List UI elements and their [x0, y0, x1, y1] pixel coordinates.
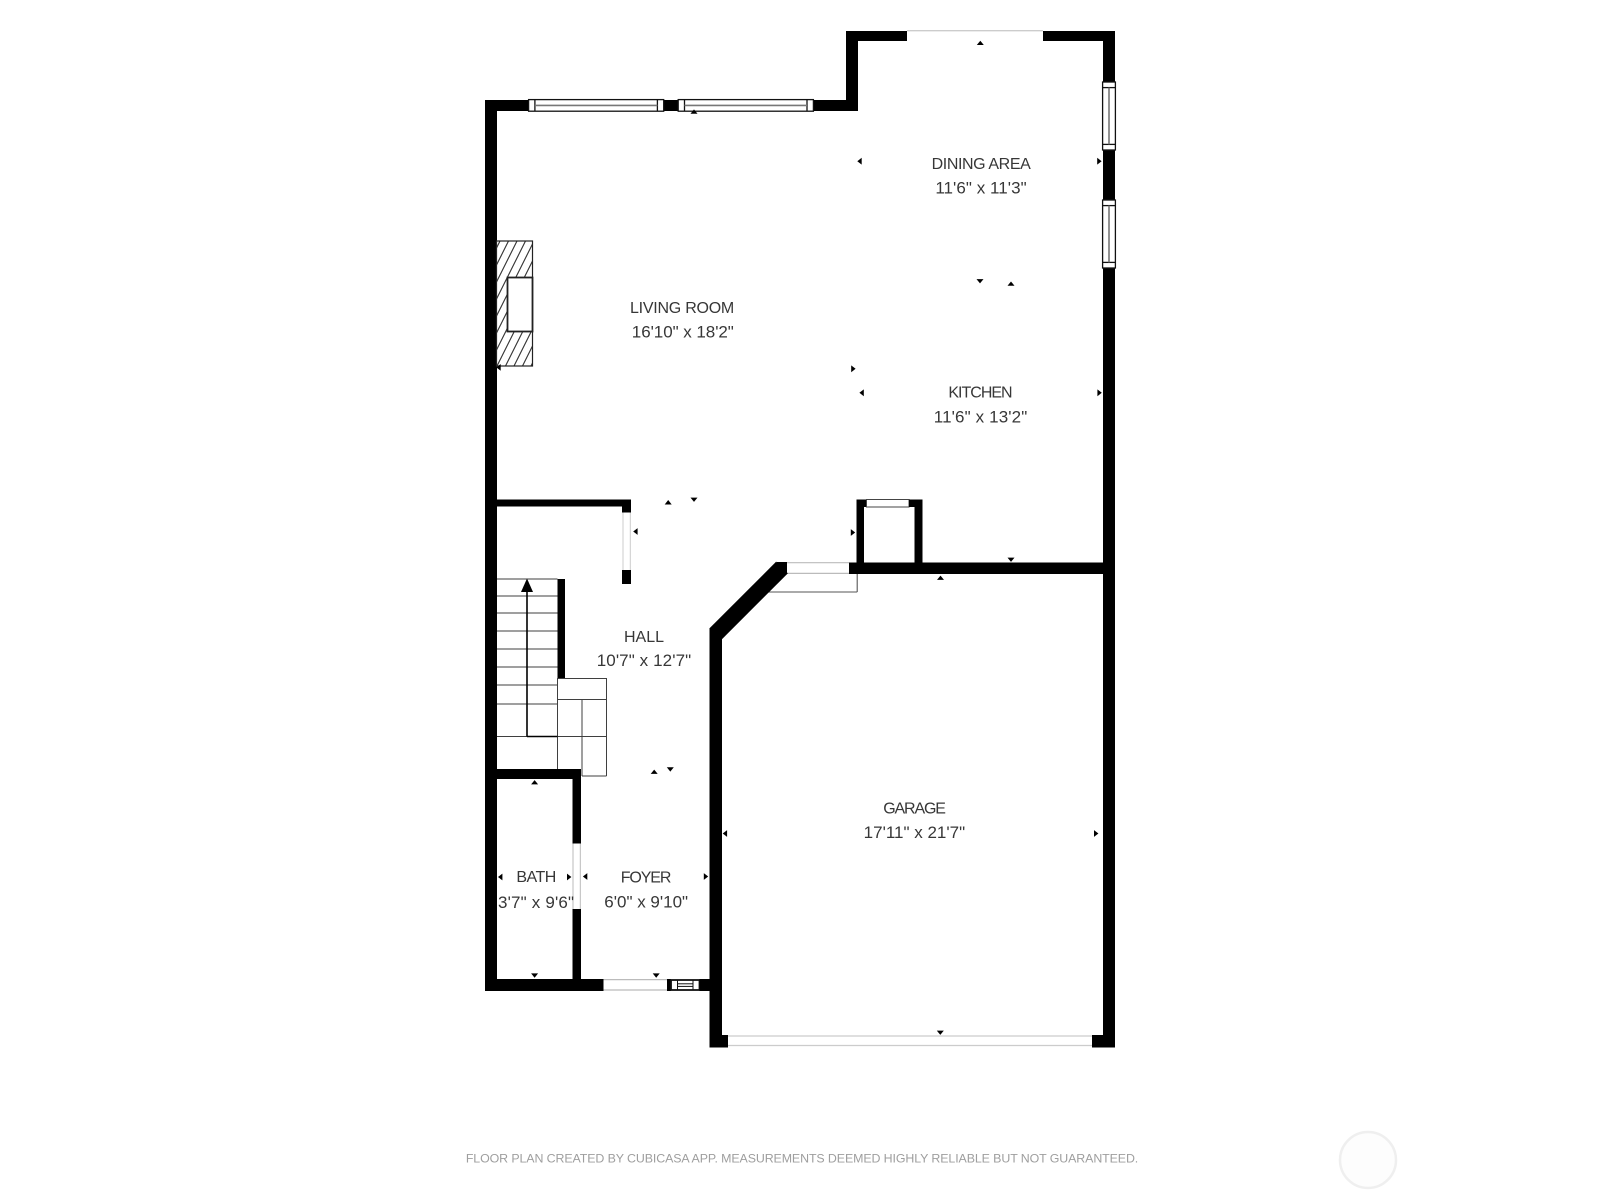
svg-text:17'11" x 21'7": 17'11" x 21'7"	[864, 823, 965, 842]
svg-text:BATH: BATH	[516, 869, 555, 886]
svg-text:HALL: HALL	[624, 629, 664, 646]
svg-text:6'0" x 9'10": 6'0" x 9'10"	[604, 893, 688, 912]
svg-text:LIVING ROOM: LIVING ROOM	[630, 300, 734, 317]
svg-text:11'6" x 13'2": 11'6" x 13'2"	[934, 408, 1028, 427]
svg-text:FLOOR PLAN CREATED BY CUBICASA: FLOOR PLAN CREATED BY CUBICASA APP. MEAS…	[466, 1152, 1138, 1166]
svg-text:3'7" x 9'6": 3'7" x 9'6"	[498, 893, 574, 912]
svg-text:GARAGE: GARAGE	[883, 801, 945, 818]
svg-text:11'6" x 11'3": 11'6" x 11'3"	[935, 179, 1026, 198]
svg-text:KITCHEN: KITCHEN	[948, 384, 1012, 401]
svg-text:DINING AREA: DINING AREA	[932, 156, 1031, 173]
svg-text:FOYER: FOYER	[621, 869, 671, 886]
svg-text:16'10" x 18'2": 16'10" x 18'2"	[632, 323, 734, 342]
svg-text:10'7" x 12'7": 10'7" x 12'7"	[597, 651, 692, 670]
